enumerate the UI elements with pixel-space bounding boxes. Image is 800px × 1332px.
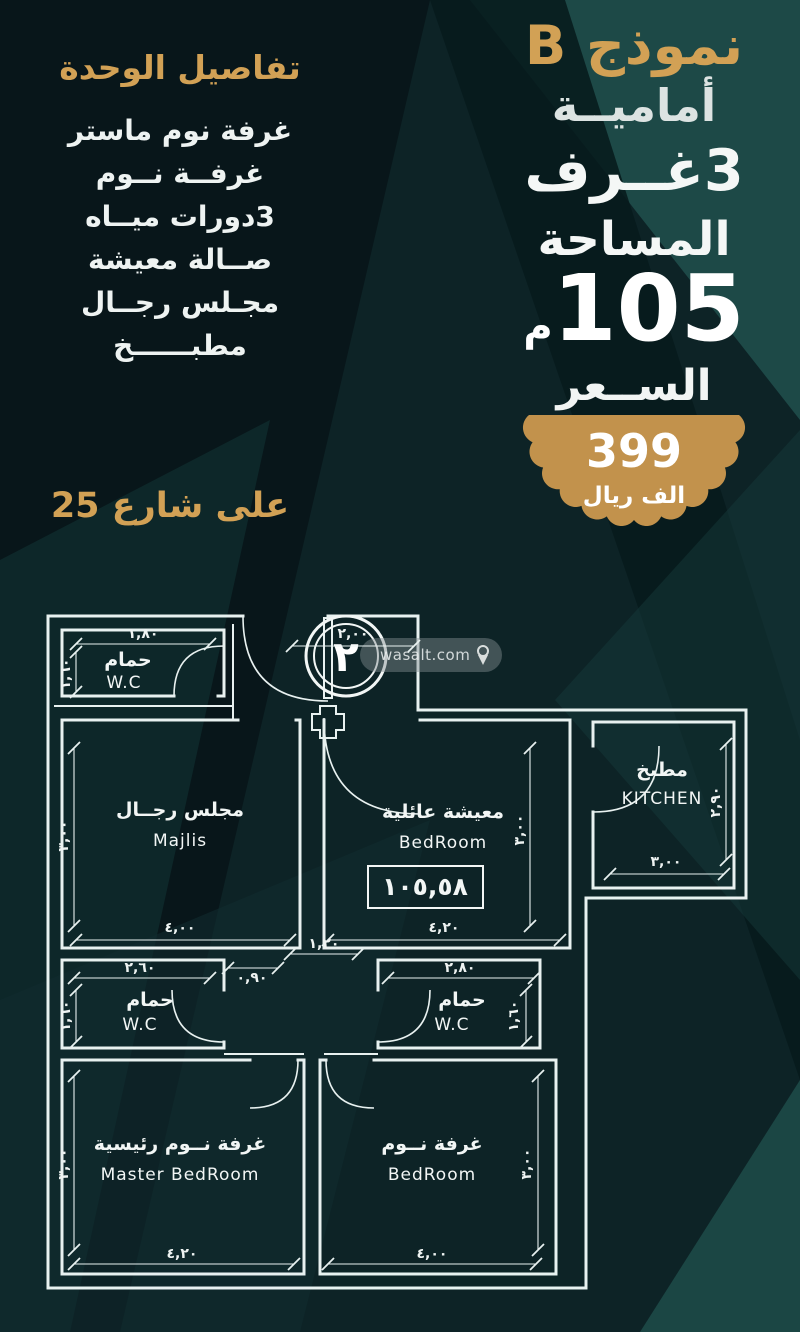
column-cross — [312, 706, 344, 738]
wc-left-door-arc — [172, 990, 224, 1042]
header-right: نموذج B أماميــة 3غــرف المساحة 105م الس… — [484, 14, 784, 537]
room-label-wc-left-ar: حمام — [126, 989, 174, 1011]
wc-top-door-arc — [174, 646, 224, 696]
detail-item: غرفة نوم ماستر — [20, 109, 340, 152]
room-label-living-ar: معيشة عائلية — [382, 801, 504, 823]
watermark: wasalt.com — [360, 638, 502, 672]
details-title: تفاصيل الوحدة — [20, 48, 340, 87]
model-title: نموذج B — [484, 14, 784, 77]
bedroom-door-arc — [326, 1060, 374, 1108]
price-label: الســعر — [484, 361, 784, 411]
room-label-master-ar: غرفة نــوم رئيسية — [94, 1133, 266, 1155]
room-label-wc-top-ar: حمام — [104, 649, 152, 671]
area-number: 105 — [553, 255, 745, 362]
room-label-bedroom-ar: غرفة نــوم — [381, 1133, 482, 1155]
poster-canvas: نموذج B أماميــة 3غــرف المساحة 105م الس… — [0, 0, 800, 1332]
dim-wc_top_w: ١,٨٠ — [128, 626, 159, 642]
room-label-bedroom-en: BedRoom — [388, 1165, 476, 1185]
dim-bedroom_w: ٤,٠٠ — [417, 1246, 448, 1262]
unit-details: تفاصيل الوحدة غرفة نوم ماستر غرفــة نــو… — [20, 48, 340, 367]
price-unit: الف ريال — [583, 483, 685, 509]
dim-living_h: ٣,٠٠ — [512, 815, 528, 846]
dim-kitchen_w: ٣,٠٠ — [651, 854, 682, 870]
room-label-kitchen-ar: مطبخ — [636, 759, 688, 781]
room-label-wc-top-en: W.C — [106, 673, 141, 693]
dim-bedroom_h: ٣,٠٠ — [519, 1149, 535, 1180]
dim-entrance_w: ٢,٠٠ — [338, 626, 369, 642]
dim-kitchen_h: ٢,٩٠ — [708, 787, 724, 818]
dim-majlis_h: ٣,٠٠ — [56, 821, 72, 852]
dim-hall_w: ١,٢٠ — [309, 936, 340, 952]
price-value: 399 — [586, 424, 682, 478]
detail-item: مطبــــــخ — [20, 324, 340, 367]
wc-right-door-arc — [378, 990, 430, 1042]
detail-item: مجـلس رجــال — [20, 281, 340, 324]
detail-item: غرفــة نــوم — [20, 152, 340, 195]
street-note: على شارع 25 — [30, 486, 310, 526]
dim-master_h: ٣,٠٠ — [56, 1149, 72, 1180]
dim-door_w: ٠,٩٠ — [237, 970, 268, 986]
area-unit: م — [523, 304, 552, 350]
dim-wc_left_w: ٢,٦٠ — [125, 960, 156, 976]
orientation-label: أماميــة — [484, 79, 784, 132]
inner-walls — [54, 624, 378, 1054]
room-label-wc-right-en: W.C — [434, 1015, 469, 1035]
dim-living_w: ٤,٢٠ — [429, 920, 460, 936]
floorplan: ٢ wasalt.com ١٠٥,٥٨ حمام W.C مجلس رجــال… — [28, 598, 768, 1308]
living-door-arc — [324, 718, 420, 814]
rooms-count: 3غــرف — [484, 138, 784, 204]
detail-item: 3دورات ميــاه — [20, 195, 340, 238]
room-label-master-en: Master BedRoom — [101, 1165, 260, 1185]
dim-master_w: ٤,٢٠ — [167, 1246, 198, 1262]
detail-item: صــالة معيشة — [20, 238, 340, 281]
area-value: 105م — [484, 263, 784, 355]
room-label-wc-left-en: W.C — [122, 1015, 157, 1035]
price-badge-shape: 399 الف ريال — [514, 415, 754, 533]
dim-wc_left_h: ١,٦٠ — [58, 1001, 74, 1032]
dim-wc_right_w: ٢,٨٠ — [445, 960, 476, 976]
price-badge: 399 الف ريال — [484, 415, 784, 537]
room-label-kitchen-en: KITCHEN — [622, 789, 703, 809]
room-label-wc-right-ar: حمام — [438, 989, 486, 1011]
dim-majlis_w: ٤,٠٠ — [165, 920, 196, 936]
room-label-living-en: BedRoom — [399, 833, 487, 853]
room-label-majlis-ar: مجلس رجــال — [116, 799, 244, 821]
room-label-majlis-en: Majlis — [153, 831, 207, 851]
area-box-value: ١٠٥,٥٨ — [382, 872, 468, 901]
area-box: ١٠٥,٥٨ — [368, 866, 483, 908]
dim-wc_right_h: ١,٦٠ — [506, 1001, 522, 1032]
exterior-walls — [48, 616, 746, 1288]
master-door-arc — [250, 1060, 298, 1108]
watermark-text: wasalt.com — [380, 646, 470, 664]
dim-wc_top_h: ١,٦٠ — [58, 659, 74, 690]
